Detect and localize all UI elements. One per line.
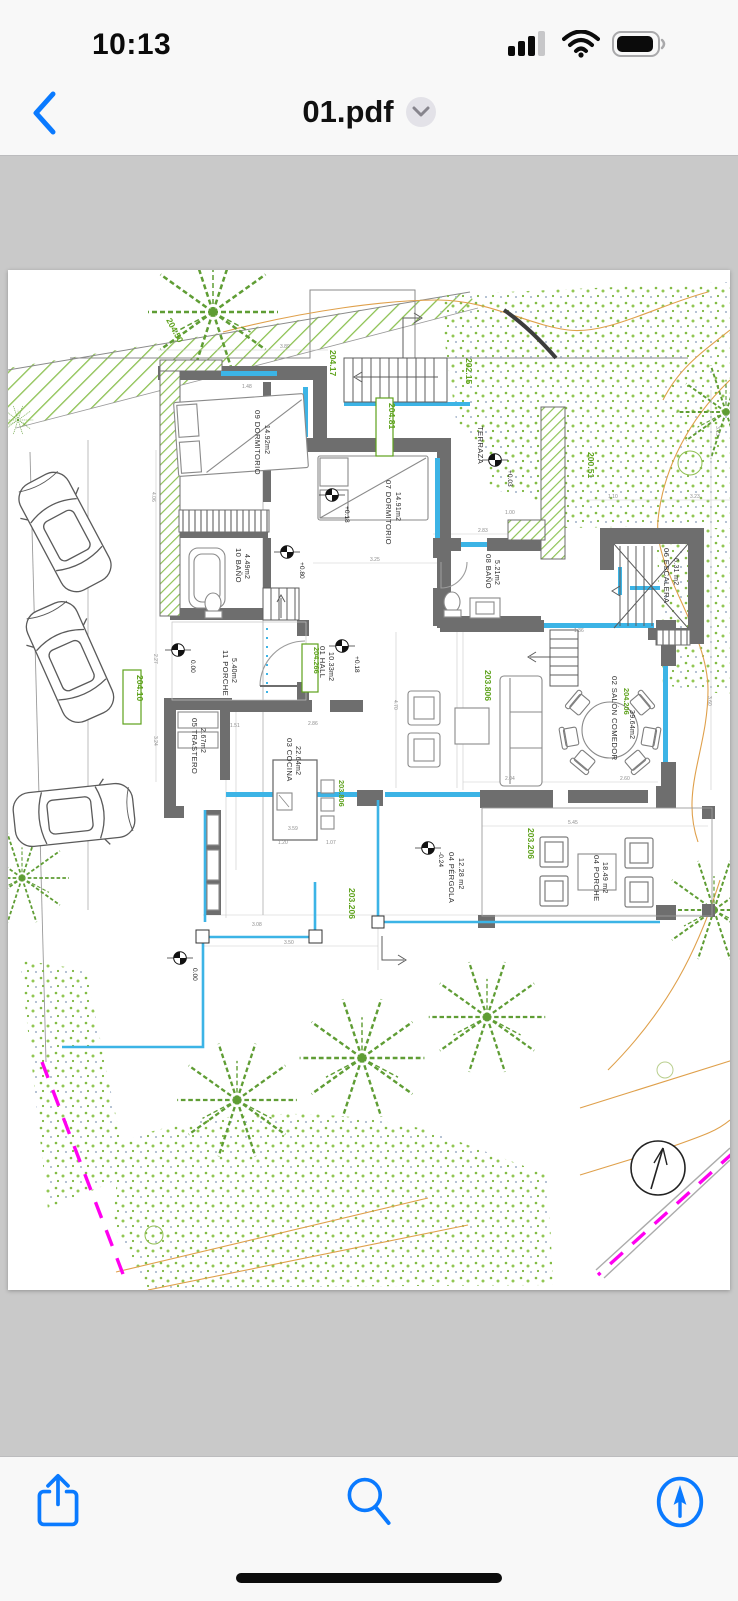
- title-disclosure-button[interactable]: [406, 97, 436, 127]
- mark-terraza: +0.03: [506, 470, 513, 487]
- north-arrow-icon: [631, 1141, 685, 1195]
- level-204-206: 204.206: [622, 688, 631, 715]
- home-indicator[interactable]: [236, 1573, 502, 1583]
- dim: 2.83: [478, 528, 488, 534]
- nav-bar: 01.pdf: [0, 70, 738, 154]
- room-label-dorm09: 09 DORMITORIO: [253, 410, 262, 475]
- level-203-806b: 203.806: [337, 780, 346, 807]
- mark-bano10: +0.80: [298, 562, 305, 579]
- room-label-trastero05: 05 TRASTERO: [190, 718, 199, 774]
- chevron-down-icon: [412, 106, 430, 118]
- share-icon: [32, 1473, 84, 1533]
- dim: 2.04: [505, 776, 515, 782]
- floor-plan-drawing: 09 DORMITORIO 14.92m2 07 DORMITORIO 14.9…: [8, 270, 730, 1290]
- dim: 4.06: [150, 492, 156, 502]
- room-area-cocina03: 22.64m2: [294, 746, 301, 775]
- room-label-bano08: 08 BAÑO: [484, 554, 493, 589]
- room-label-escalera06: 06 ESCALERA: [662, 548, 671, 604]
- svg-text:204.81: 204.81: [387, 403, 397, 430]
- room-area-bano08: 5.21m2: [493, 560, 500, 585]
- mark-pergola: -0.24: [437, 852, 444, 867]
- room-area-porche11: 5.40m2: [230, 658, 237, 683]
- dim: 4.70: [392, 700, 398, 710]
- room-area-escalera06: 6.31 m2: [672, 558, 679, 585]
- pool-terrace-edges: [62, 800, 660, 1047]
- status-icons: [508, 30, 666, 58]
- dim: 3.24: [152, 736, 158, 746]
- room-area-dorm09: 14.92m2: [263, 425, 270, 454]
- dim: 2.27: [152, 654, 158, 664]
- svg-text:204.266: 204.266: [312, 647, 321, 674]
- level-203-806a: 203.806: [483, 670, 493, 701]
- markup-button[interactable]: [650, 1473, 710, 1533]
- dim: 2.86: [308, 721, 318, 727]
- mark-pool: 0.00: [191, 968, 198, 981]
- level-203-206a: 203.206: [526, 828, 536, 859]
- dim: 3.60: [706, 696, 712, 706]
- dim: 3.50: [284, 940, 294, 946]
- room-area-pergola04: 12.28 m2: [457, 858, 464, 890]
- level-204-266-box: 204.266: [302, 644, 321, 692]
- dim: 1.51: [230, 723, 240, 729]
- room-label-salon02: 02 SALÓN COMEDOR: [610, 676, 619, 761]
- cellular-signal-icon: [508, 30, 550, 58]
- dim: 1.48: [242, 384, 252, 390]
- mark-dorm07: +0.18: [343, 506, 350, 523]
- room-area-hall01: 10.33m2: [327, 652, 334, 681]
- dim: 1.36: [574, 628, 584, 634]
- share-button[interactable]: [28, 1473, 88, 1533]
- status-bar: 10:13: [0, 0, 738, 70]
- dim: 3.08: [252, 922, 262, 928]
- mark-hall: +0.18: [353, 656, 360, 673]
- search-button[interactable]: [339, 1473, 399, 1533]
- bottom-toolbar: [0, 1456, 738, 1601]
- page-title: 01.pdf: [302, 94, 393, 130]
- room-label-terraza: TERRAZA: [476, 426, 485, 465]
- room-area-dorm07: 14.91m2: [394, 492, 401, 521]
- room-area-bano10: 4.49m2: [243, 554, 250, 579]
- level-203-206b: 203.206: [347, 888, 357, 919]
- dim: 3.59: [288, 826, 298, 832]
- dim: 1.10: [608, 494, 618, 500]
- document-title-group[interactable]: 01.pdf: [0, 70, 738, 154]
- top-chrome: 10:13: [0, 0, 738, 156]
- level-204-17: 204.17: [328, 350, 338, 377]
- parked-cars: [8, 464, 137, 855]
- exit-arrow: [382, 936, 406, 965]
- room-area-porche04: 18.49 m2: [601, 862, 608, 894]
- dim: 1.07: [326, 840, 336, 846]
- dim: 3.13: [714, 426, 720, 436]
- pdf-viewer-screen: { "status_bar": { "time": "10:13", "icon…: [0, 0, 738, 1600]
- room-label-porche11: 11 PORCHE: [221, 650, 230, 696]
- room-label-bano10: 10 BAÑO: [234, 548, 243, 583]
- level-200-51: 200.51: [586, 452, 596, 479]
- room-label-pergola04: 04 PÉRGOLA: [447, 852, 456, 904]
- dim: 5.45: [568, 820, 578, 826]
- svg-text:204.10: 204.10: [135, 675, 145, 702]
- room-label-porche04: 04 PORCHE: [592, 855, 601, 902]
- dim: 1.20: [278, 840, 288, 846]
- level-204-50: 204.50: [164, 316, 185, 344]
- dim: 2.60: [620, 776, 630, 782]
- dim: 1.00: [505, 510, 515, 516]
- dim: 3.89: [280, 344, 290, 350]
- level-202-15: 202.15: [464, 358, 474, 385]
- room-label-dorm07: 07 DORMITORIO: [384, 480, 393, 545]
- markup-pen-icon: [653, 1473, 707, 1531]
- room-area-trastero05: 2.67m2: [199, 728, 206, 753]
- pillar-bases: [196, 916, 384, 943]
- status-time: 10:13: [92, 28, 171, 62]
- room-label-cocina03: 03 COCINA: [285, 738, 294, 782]
- battery-icon: [612, 31, 666, 57]
- dim: 3.23: [690, 494, 700, 500]
- mark-porche11: 0.00: [189, 660, 196, 673]
- level-204-10-box: 204.10: [123, 670, 145, 724]
- pdf-page[interactable]: 09 DORMITORIO 14.92m2 07 DORMITORIO 14.9…: [8, 270, 730, 1290]
- search-icon: [342, 1474, 396, 1530]
- wifi-icon: [562, 30, 600, 58]
- dim: 3.25: [370, 557, 380, 563]
